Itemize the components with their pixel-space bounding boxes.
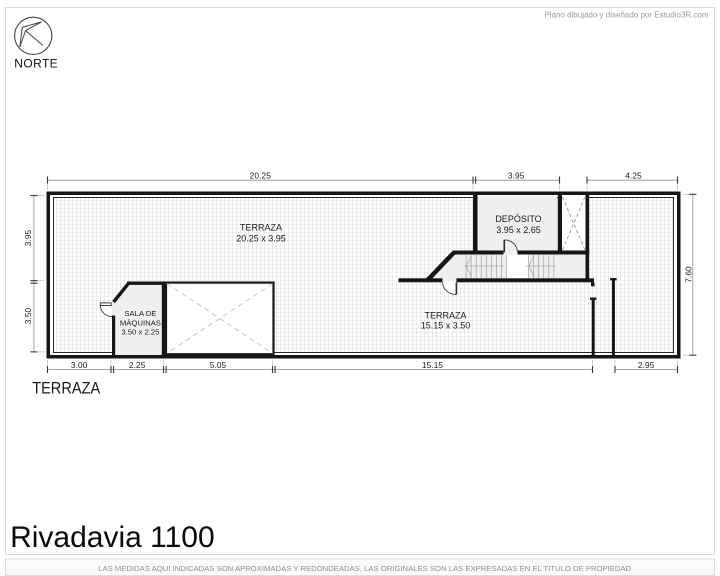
svg-text:4.25: 4.25 xyxy=(625,170,642,180)
svg-text:Rivadavia 1100: Rivadavia 1100 xyxy=(10,521,215,554)
svg-text:TERRAZA: TERRAZA xyxy=(32,378,101,397)
svg-text:5.05: 5.05 xyxy=(210,360,227,370)
svg-text:Plano dibujado y diseñado por: Plano dibujado y diseñado por Estudio3R.… xyxy=(544,10,708,19)
svg-text:3.50: 3.50 xyxy=(23,307,33,324)
svg-text:15.15: 15.15 xyxy=(422,360,444,370)
svg-text:LAS MEDIDAS AQUI INDICADAS SON: LAS MEDIDAS AQUI INDICADAS SON APROXIMAD… xyxy=(98,564,631,573)
svg-text:20.25: 20.25 xyxy=(250,170,272,180)
svg-text:2.25: 2.25 xyxy=(129,360,146,370)
svg-text:3.00: 3.00 xyxy=(71,360,88,370)
svg-text:DEPÓSITO: DEPÓSITO xyxy=(495,214,541,224)
svg-text:TERRAZA: TERRAZA xyxy=(240,223,282,233)
svg-text:3.95: 3.95 xyxy=(23,229,33,246)
svg-text:TERRAZA: TERRAZA xyxy=(424,311,466,321)
svg-text:MÁQUINAS: MÁQUINAS xyxy=(120,318,161,327)
svg-text:20.25 x 3.95: 20.25 x 3.95 xyxy=(236,234,286,244)
svg-text:NORTE: NORTE xyxy=(14,57,58,71)
svg-text:7.60: 7.60 xyxy=(684,266,694,283)
svg-text:2.95: 2.95 xyxy=(638,360,655,370)
svg-text:3.95: 3.95 xyxy=(508,170,525,180)
svg-text:3.95 x 2.65: 3.95 x 2.65 xyxy=(496,225,541,235)
svg-text:SALA DE: SALA DE xyxy=(124,309,156,318)
svg-text:15.15 x 3.50: 15.15 x 3.50 xyxy=(421,320,471,330)
svg-text:3.50 x 2.25: 3.50 x 2.25 xyxy=(121,327,159,336)
